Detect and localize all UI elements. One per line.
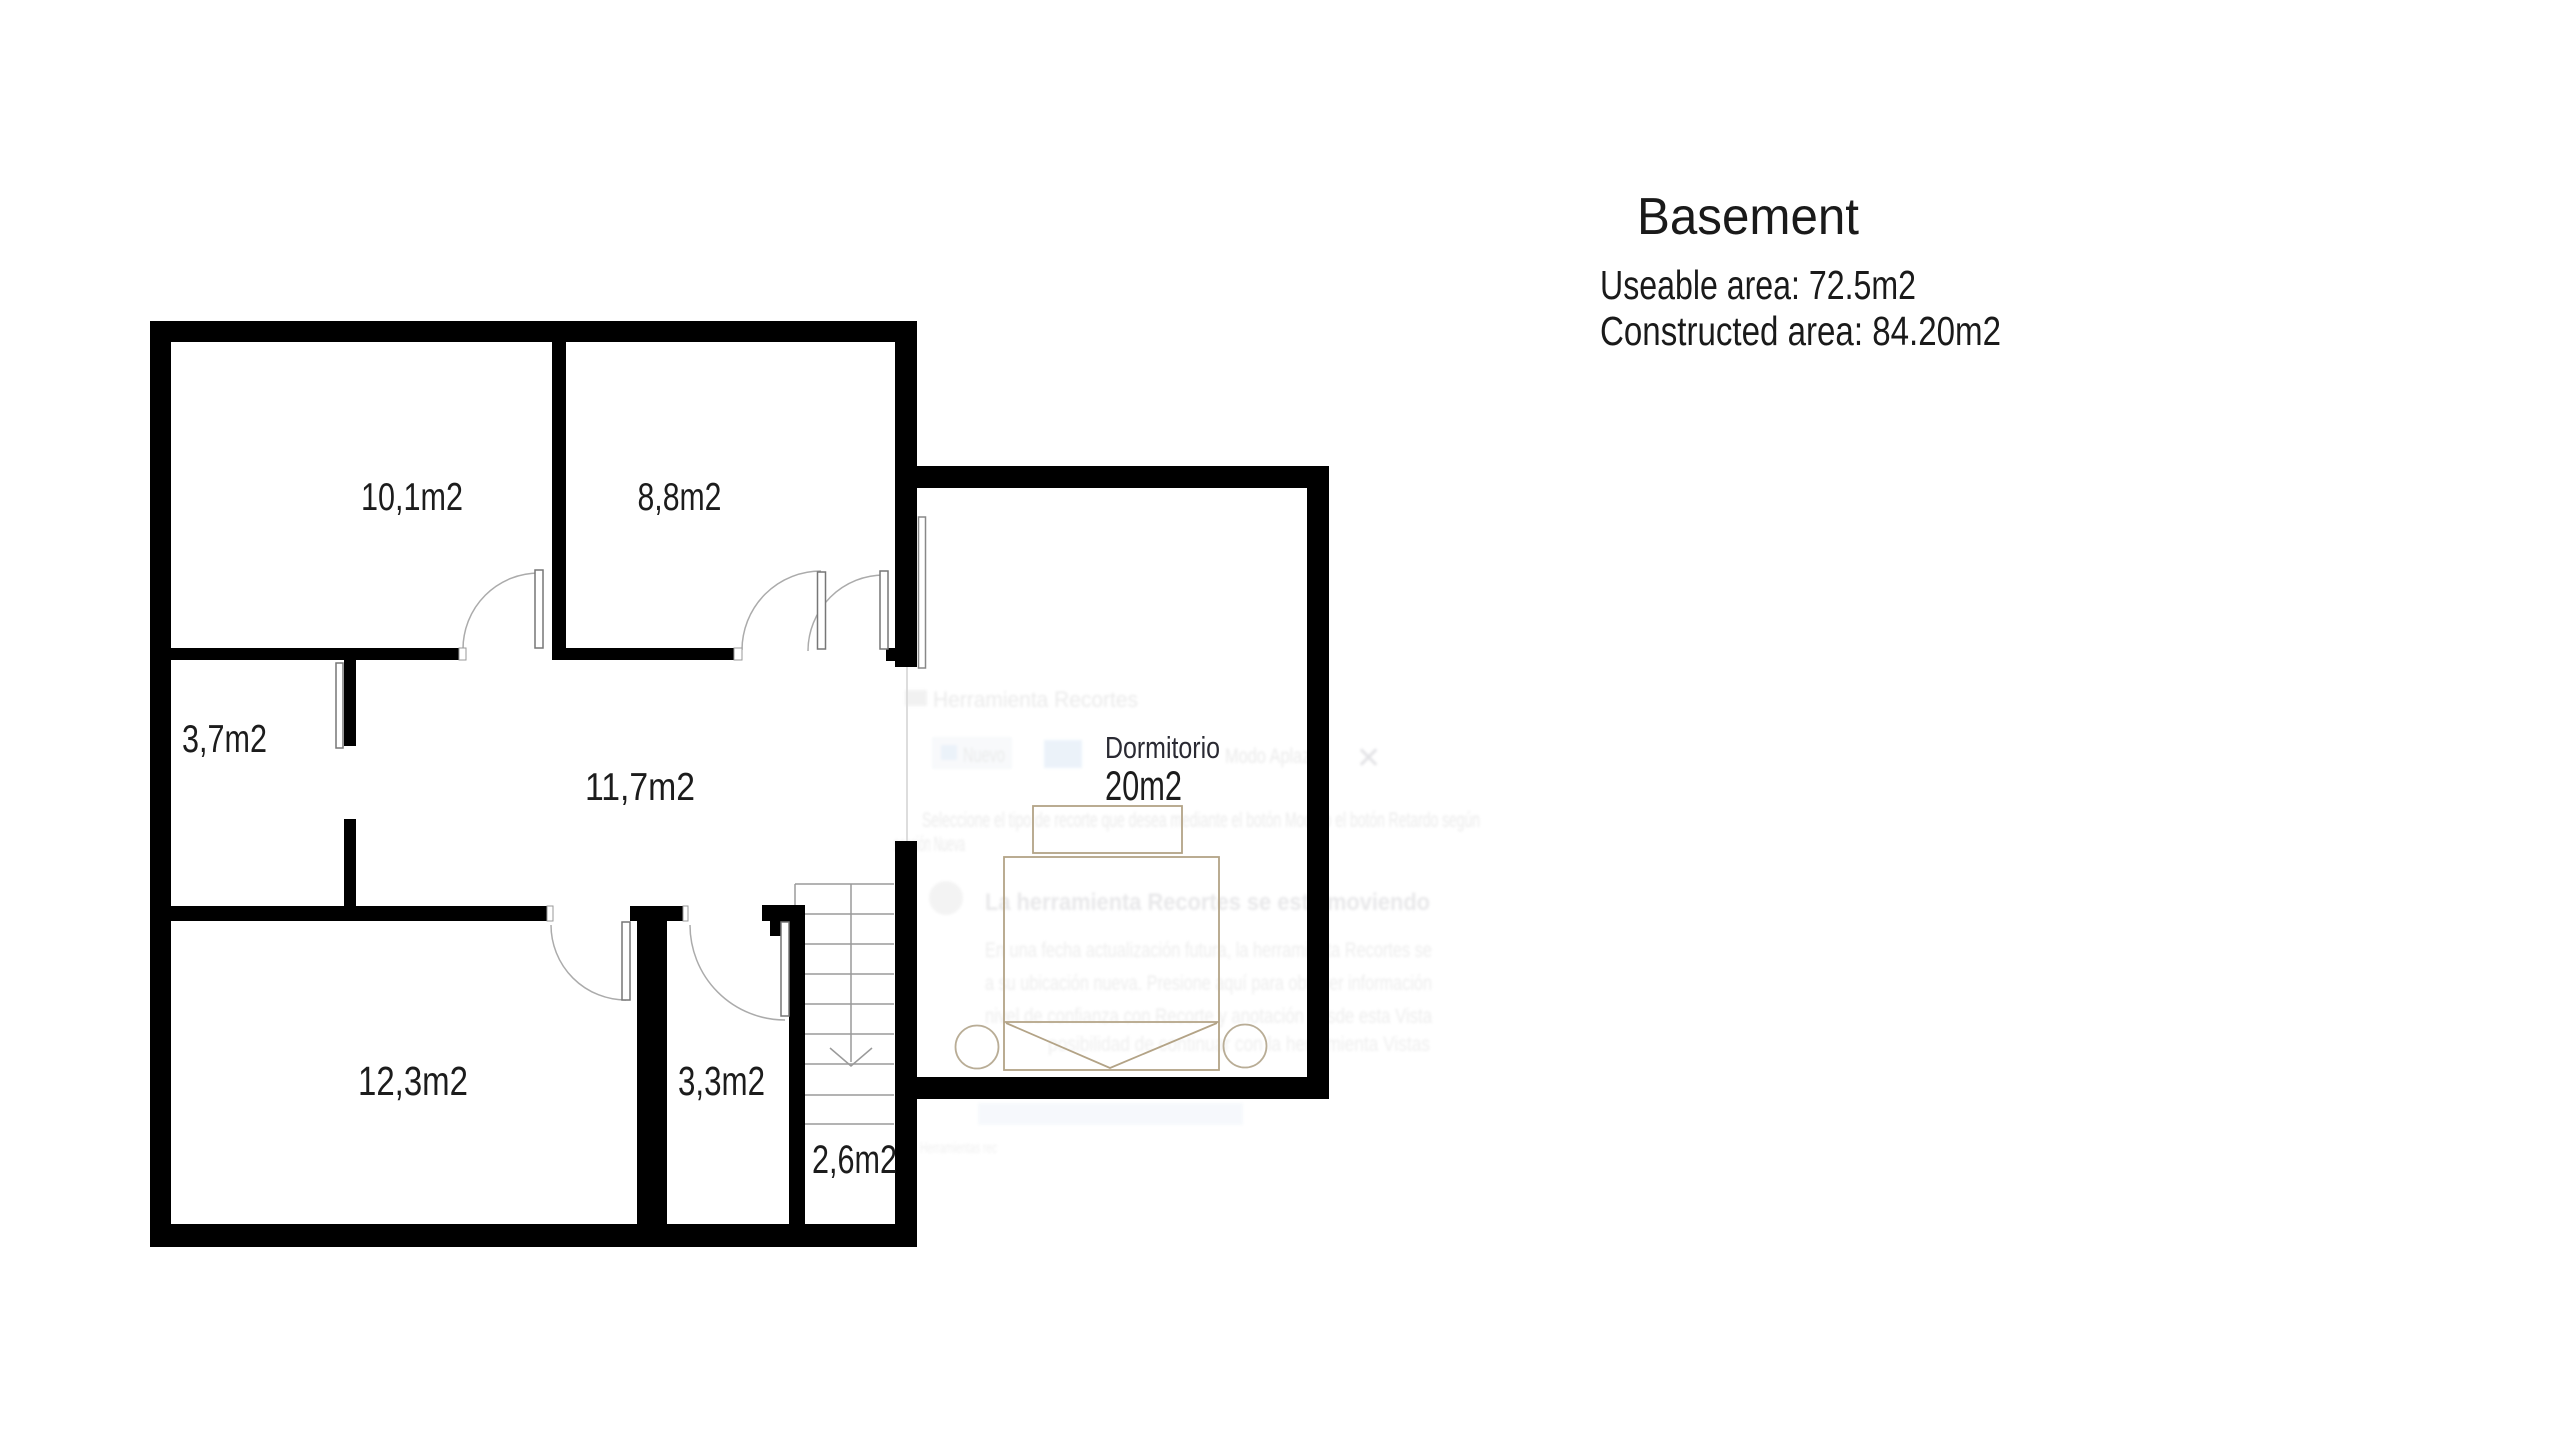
svg-text:Herramientas rec: Herramientas rec: [920, 1140, 997, 1157]
svg-text:10,1m2: 10,1m2: [361, 476, 463, 519]
svg-text:8,8m2: 8,8m2: [638, 476, 722, 519]
svg-text:Dormitorio: Dormitorio: [1105, 730, 1220, 765]
svg-text:Seleccione el tipo de recorte: Seleccione el tipo de recorte que desea …: [922, 809, 1480, 832]
svg-text:Herramienta Recortes: Herramienta Recortes: [933, 687, 1138, 712]
svg-text:a su ubicación nueva. Presione: a su ubicación nueva. Presione aquí para…: [985, 972, 1432, 995]
svg-text:En una fecha actualización fut: En una fecha actualización futura, la he…: [985, 939, 1432, 962]
svg-text:nivel de confianza con Recorte: nivel de confianza con Recorte y anotaci…: [985, 1005, 1432, 1028]
svg-text:3,7m2: 3,7m2: [182, 718, 267, 761]
svg-text:3,3m2: 3,3m2: [678, 1058, 765, 1104]
svg-text:11,7m2: 11,7m2: [585, 766, 695, 809]
svg-text:12,3m2: 12,3m2: [358, 1058, 468, 1104]
svg-text:Nuevo: Nuevo: [963, 744, 1005, 767]
svg-text:2,6m2: 2,6m2: [812, 1138, 897, 1182]
svg-text:posibilidad de continuar con l: posibilidad de continuar con la herramie…: [1048, 1033, 1430, 1056]
svg-text:La herramienta Recortes se est: La herramienta Recortes se está moviendo: [985, 889, 1430, 916]
svg-text:Basement: Basement: [1637, 188, 1860, 246]
svg-text:✕: ✕: [1356, 742, 1381, 775]
svg-text:Constructed area: 84.20m2: Constructed area: 84.20m2: [1600, 308, 2001, 354]
svg-text:Useable area: 72.5m2: Useable area: 72.5m2: [1600, 262, 1916, 308]
svg-text:20m2: 20m2: [1105, 762, 1182, 809]
